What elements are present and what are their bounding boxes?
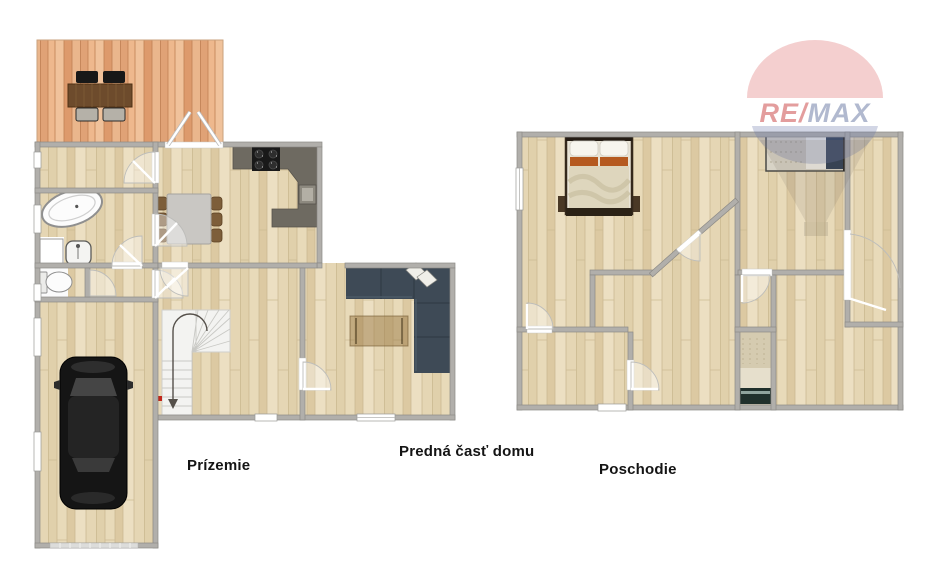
car: [54, 357, 133, 509]
garage-door: [50, 543, 138, 548]
cooktop: [252, 147, 280, 171]
toilet: [38, 272, 72, 293]
balloon-top-icon: [747, 40, 883, 98]
floorplan-page: RE/MAX Prízemie Predná časť domu Poschod…: [0, 0, 940, 580]
remax-wordmark: RE/MAX: [759, 98, 871, 128]
washing-machine: [40, 239, 63, 265]
terrace-deck: [37, 40, 223, 143]
kitchen-sink: [299, 185, 316, 204]
floorplan-canvas: RE/MAX: [0, 0, 940, 580]
ground-floor-label: Prízemie: [187, 457, 250, 474]
double-bed: [558, 134, 640, 216]
coffee-table: [350, 316, 408, 346]
upper-floor-label: Poschodie: [599, 461, 677, 478]
bathroom-sink: [66, 241, 91, 265]
balloon-basket-icon: [804, 222, 828, 236]
single-bed-small-room: [739, 331, 772, 405]
front-part-label: Predná časť domu: [399, 443, 534, 460]
